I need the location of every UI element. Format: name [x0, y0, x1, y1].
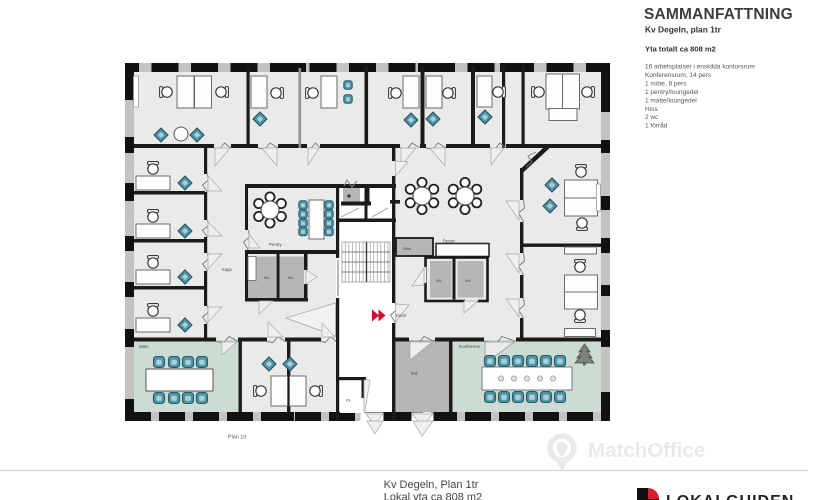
svg-text:SAMMANFATTNING: SAMMANFATTNING	[644, 6, 793, 23]
svg-text:Konferensrum, 14 pers: Konferensrum, 14 pers	[645, 72, 712, 79]
svg-text:Wc: Wc	[436, 279, 442, 283]
svg-text:Konferens: Konferens	[459, 344, 481, 349]
svg-text:Städ: Städ	[403, 247, 411, 251]
svg-text:LOKALGUIDEN: LOKALGUIDEN	[666, 493, 794, 500]
svg-text:Frd: Frd	[411, 371, 418, 376]
svg-text:Wc: Wc	[264, 276, 270, 280]
svg-text:Wc: Wc	[288, 276, 294, 280]
svg-text:Möte: Möte	[139, 344, 149, 349]
svg-text:16 arbetsplatser i enskilda ko: 16 arbetsplatser i enskilda kontorsrum	[645, 64, 755, 71]
svg-text:MatchOffice: MatchOffice	[588, 439, 705, 462]
svg-text:2 wc: 2 wc	[645, 114, 659, 121]
svg-text:1 möte, 8 pers: 1 möte, 8 pers	[645, 80, 687, 87]
svg-text:1 matte/loungedel: 1 matte/loungedel	[645, 97, 697, 104]
svg-text:Kapp: Kapp	[222, 267, 232, 272]
svg-text:Plan 1tr: Plan 1tr	[228, 435, 247, 441]
svg-text:Pentry: Pentry	[443, 239, 456, 244]
svg-text:1 förråd: 1 förråd	[645, 122, 668, 130]
svg-text:Kv Degeln, plan 1tr: Kv Degeln, plan 1tr	[645, 25, 722, 35]
svg-text:Hiss: Hiss	[645, 106, 658, 113]
svg-text:Lokal yta ca 808 m2: Lokal yta ca 808 m2	[384, 492, 482, 500]
svg-text:Yta totalt ca 808 m2: Yta totalt ca 808 m2	[645, 45, 716, 54]
svg-text:1 pentry/loungedel: 1 pentry/loungedel	[645, 89, 699, 96]
svg-text:Kv Degeln, Plan 1tr: Kv Degeln, Plan 1tr	[384, 479, 479, 491]
svg-text:Fs: Fs	[346, 398, 351, 403]
svg-text:Wc: Wc	[465, 279, 471, 283]
svg-text:Entré: Entré	[396, 313, 407, 318]
svg-text:Pentry: Pentry	[269, 242, 282, 247]
